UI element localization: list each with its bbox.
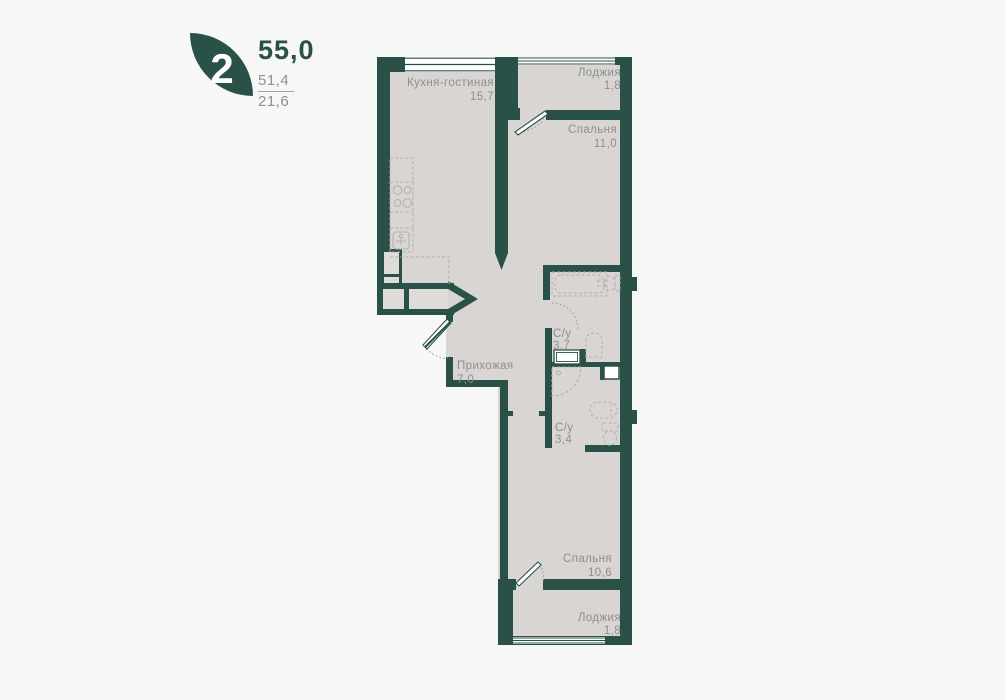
room-label-bathroom-1: С/у [553, 328, 571, 340]
room-label-loggia-top: Лоджия [578, 67, 621, 79]
room-area-bathroom-1: 3,7 [553, 340, 570, 352]
room-area-loggia-bottom: 1,8 [604, 625, 621, 637]
floorplan-page: 2 55,0 51,4 21,6 [0, 0, 1006, 700]
room-area-bathroom-2: 3,4 [555, 434, 572, 446]
room-area-bedroom-1: 11,0 [594, 138, 617, 150]
washing-machine-icon [554, 350, 580, 364]
window-loggia-bottom [513, 637, 605, 644]
room-area-hallway: 7,0 [457, 374, 474, 386]
door-jamb-tick [539, 411, 545, 416]
floorplan-drawing: Кухня-гостиная 15,7 Лоджия 1,8 Спальня 1… [0, 0, 1006, 700]
room-label-bedroom-1: Спальня [568, 124, 617, 136]
room-label-bathroom-2: С/у [555, 422, 573, 434]
room-label-hallway: Прихожая [457, 360, 514, 372]
door-jamb-tick [508, 411, 513, 416]
room-label-kitchen-living: Кухня-гостиная [407, 77, 494, 89]
wall-pilaster [632, 410, 637, 424]
room-area-kitchen-living: 15,7 [470, 91, 494, 103]
wall-pilaster [632, 277, 637, 291]
window-kitchen [405, 57, 495, 72]
room-label-bedroom-2: Спальня [563, 553, 612, 565]
room-area-loggia-top: 1,8 [604, 80, 621, 92]
window-loggia-top [518, 57, 615, 65]
duct-niche [604, 366, 619, 379]
room-area-bedroom-2: 10,6 [588, 567, 612, 579]
room-label-loggia-bottom: Лоджия [578, 612, 621, 624]
